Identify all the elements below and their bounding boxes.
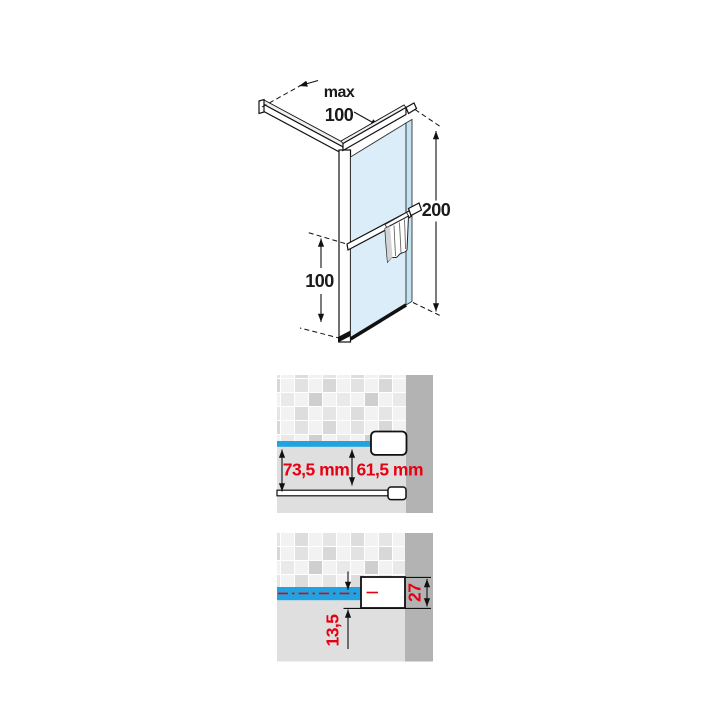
plan-rail-body [277, 490, 388, 496]
plan-rail-cap [388, 487, 406, 500]
center-offset-value: 13,5 [323, 614, 343, 647]
plan-left-dim-value: 73,5 mm [283, 460, 350, 480]
bar-height-value: 100 [305, 271, 334, 291]
dimension-panel-height: 200 [413, 110, 451, 317]
plan-wall-bracket [371, 432, 407, 455]
technical-diagram: max 100 [0, 0, 720, 720]
profile-depth-value: 27 [405, 584, 425, 602]
dimension-bar-height: 100 [300, 233, 345, 339]
isometric-view: max 100 [259, 81, 451, 343]
section-view: 27 13,5 [277, 533, 433, 662]
panel-height-value: 200 [422, 200, 451, 220]
plan-glass-panel [277, 441, 378, 447]
plan-view: 73,5 mm 61,5 mm [277, 375, 433, 513]
arm-length-value: 100 [325, 105, 354, 125]
page: max 100 [0, 0, 720, 720]
plan-side-wall [406, 375, 433, 513]
top-cap-end [406, 103, 417, 114]
plan-right-dim-value: 61,5 mm [357, 460, 424, 480]
max-label: max [324, 84, 355, 101]
